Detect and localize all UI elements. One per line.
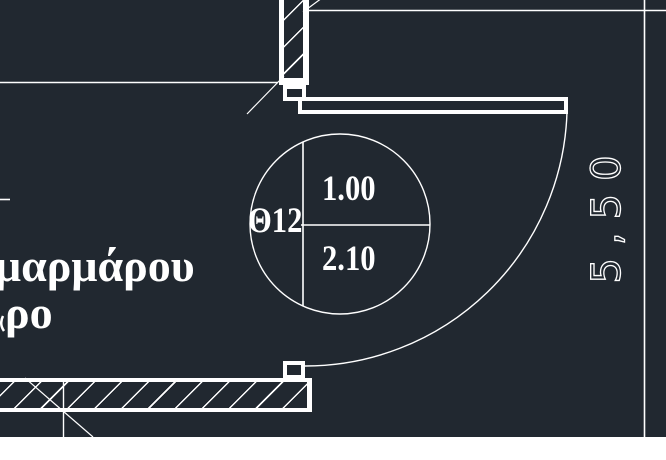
door-tag-width-value[interactable]: 1.00 — [322, 170, 376, 206]
door-tag-code[interactable]: Θ12 — [248, 202, 302, 238]
dimension-text[interactable]: 5,50 — [586, 128, 628, 298]
room-label-line2[interactable]: ρο — [5, 290, 53, 336]
canvas-bottom-margin — [0, 437, 666, 460]
room-label-line1[interactable]: μαρμάρου — [0, 243, 195, 289]
door-tag-height-value[interactable]: 2.10 — [322, 240, 376, 276]
hatch-overflow-line-top-wall[interactable] — [247, 76, 284, 114]
hatch-cross-line-bottom-wall[interactable] — [25, 378, 64, 412]
clipped-letter-fragment — [1, 316, 4, 331]
diagonal-line-below-wall[interactable] — [63, 411, 93, 437]
cad-linework-layer — [0, 0, 666, 437]
cad-model-space[interactable]: Θ12 1.00 2.10 μαρμάρου ρο 5,50 — [0, 0, 666, 437]
